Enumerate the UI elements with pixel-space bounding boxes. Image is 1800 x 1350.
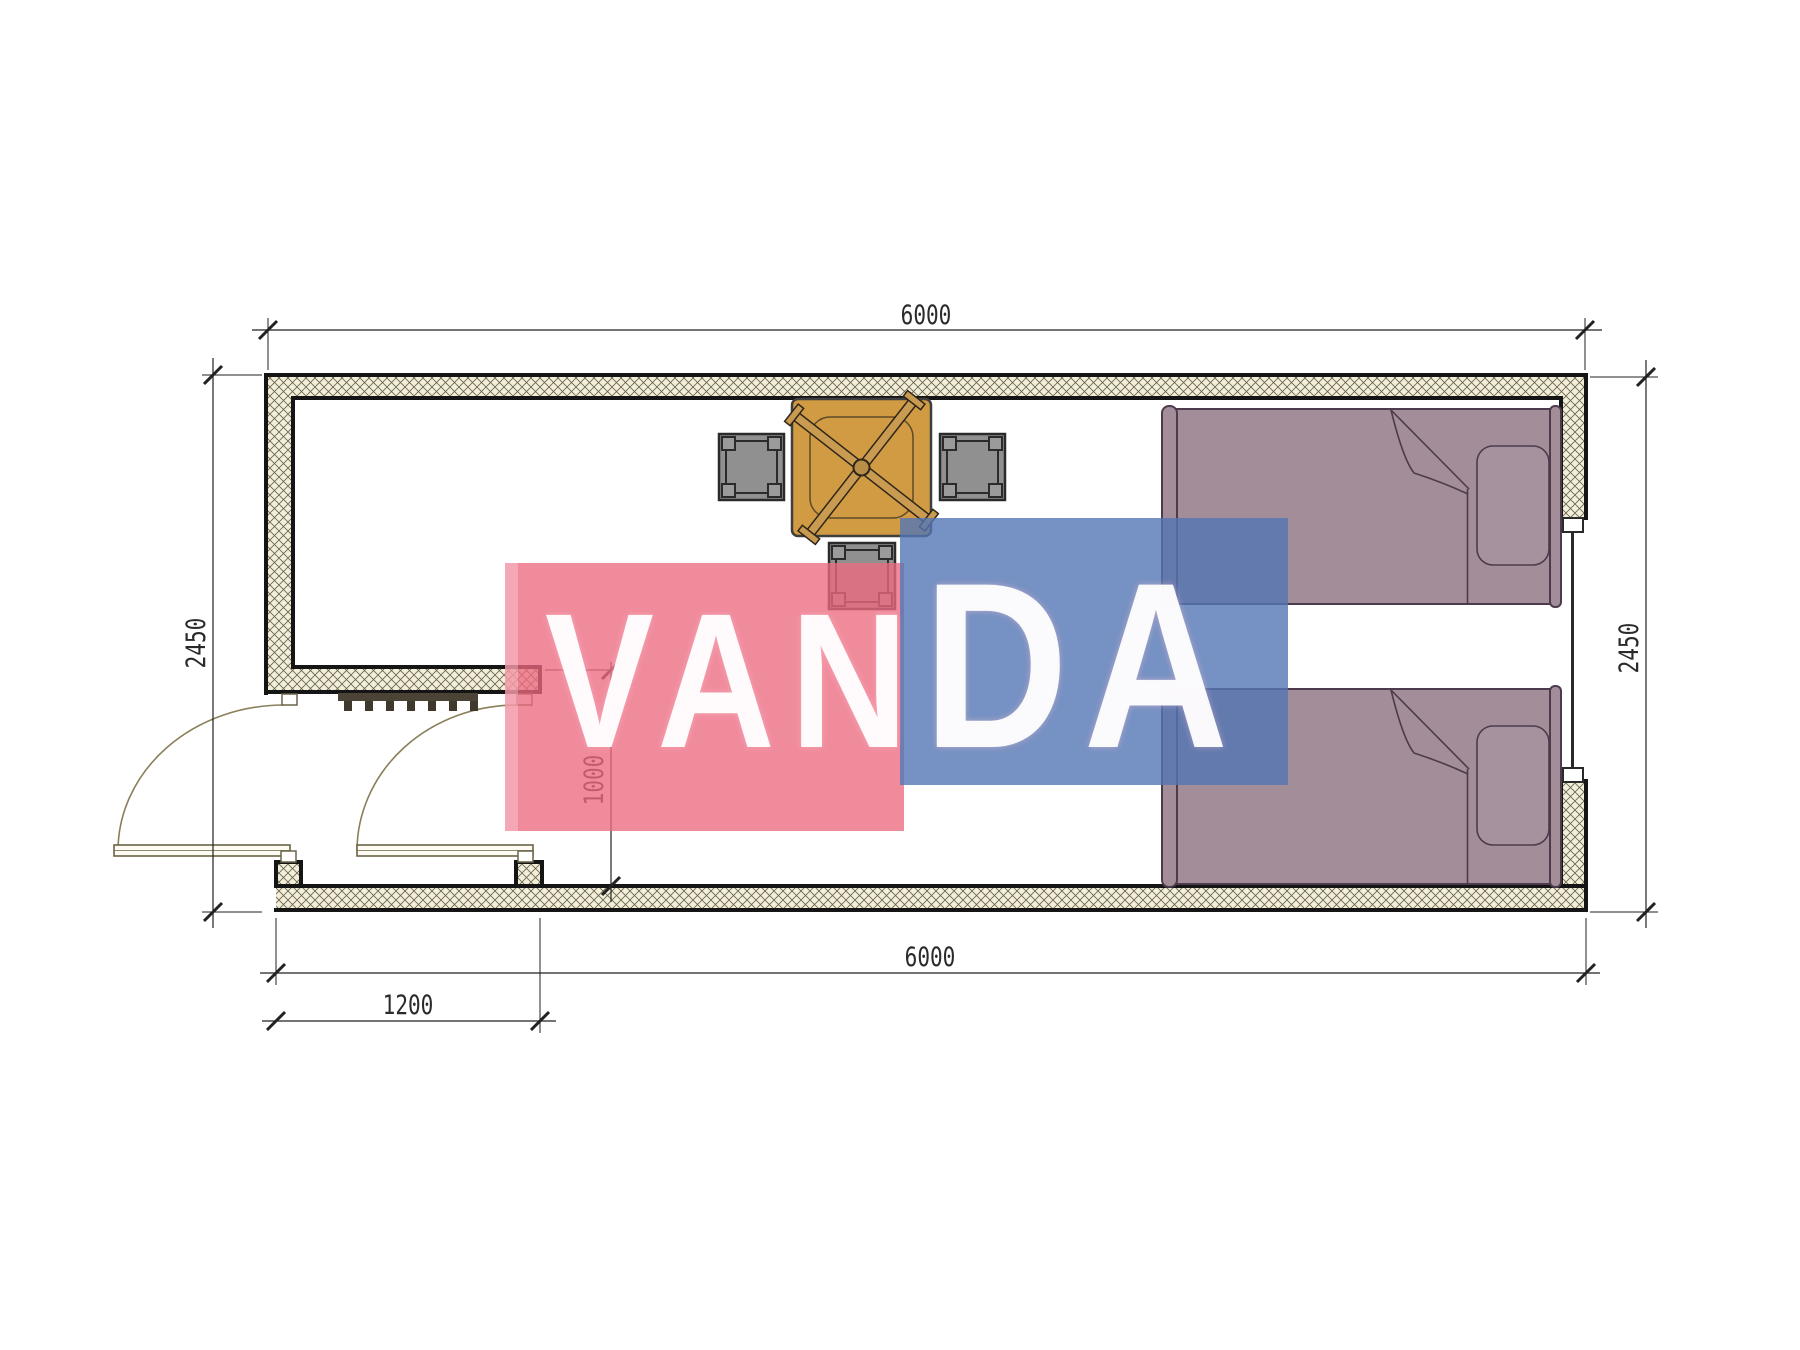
window-jamb-bottom (1563, 768, 1583, 782)
wall-interior-porch (268, 667, 540, 694)
wall-right-upper (1561, 375, 1586, 520)
doormat-tooth (470, 701, 478, 711)
dim-bottom-6000: 6000 (260, 918, 1600, 985)
bed-footboard (1550, 406, 1561, 607)
doormat-tooth (428, 701, 436, 711)
door-jamb-left (282, 694, 297, 705)
wall-left (268, 375, 293, 694)
doormat-tooth (386, 701, 394, 711)
window (1563, 518, 1583, 782)
stool-post (768, 484, 781, 497)
dim-label-entry-width: 1200 (383, 989, 434, 1020)
pier-right-side-a (514, 860, 518, 886)
bed-pillow (1477, 446, 1549, 565)
wall-line-outer-bottom (274, 908, 1588, 912)
dim-right-2450: 2450 (1590, 360, 1658, 928)
wall-line-outer-right-lower (1584, 779, 1588, 912)
pier-right-side-b (540, 860, 544, 886)
window-glass-line (1571, 532, 1574, 768)
entry-doors (114, 693, 533, 862)
window-jamb-top (1563, 518, 1583, 532)
floor-plan-page: 6000 6000 1200 2450 (0, 0, 1800, 1350)
bed-footboard (1550, 686, 1561, 887)
door-swing-arc-left (118, 705, 284, 851)
dim-top-6000: 6000 (252, 299, 1602, 370)
dim-label-top-width: 6000 (901, 299, 952, 330)
dim-left-2450: 2450 (180, 358, 262, 928)
dim-label-bottom-width: 6000 (905, 941, 956, 972)
doormat-tooth (407, 701, 415, 711)
stool-post (989, 484, 1002, 497)
wall-line-inner-left (291, 396, 295, 669)
watermark-text-segment-da: DA (923, 548, 1243, 784)
dim-entry-1200: 1200 (262, 918, 556, 1033)
pier-left-side-b (299, 860, 303, 886)
stool-post (943, 437, 956, 450)
wall-line-outer-left (264, 373, 268, 695)
door-swing-arc-right (357, 705, 517, 851)
doormat-tooth (365, 701, 373, 711)
stool-post (768, 437, 781, 450)
dim-label-right-depth: 2450 (1613, 623, 1644, 674)
door-hinge-block-right (518, 851, 533, 862)
watermark-logo-text: VANDA (545, 548, 1244, 784)
doormat-tooth (449, 701, 457, 711)
wall-line-outer-top (264, 373, 1588, 377)
stool-post (722, 484, 735, 497)
pier-left-side-a (274, 860, 278, 886)
doormat (338, 693, 478, 711)
doormat-bar (338, 693, 478, 701)
stool-post (943, 484, 956, 497)
stool-left (719, 434, 784, 500)
stool-right (940, 434, 1005, 500)
doormat-tooth (344, 701, 352, 711)
stool-post (722, 437, 735, 450)
dim-label-left-depth: 2450 (180, 618, 211, 669)
wall-line-outer-right-upper (1584, 373, 1588, 520)
door-hinge-block-left (281, 851, 296, 862)
bed-pillow (1477, 726, 1549, 845)
watermark-text-segment-van: VAN (545, 585, 923, 777)
stool-post (989, 437, 1002, 450)
